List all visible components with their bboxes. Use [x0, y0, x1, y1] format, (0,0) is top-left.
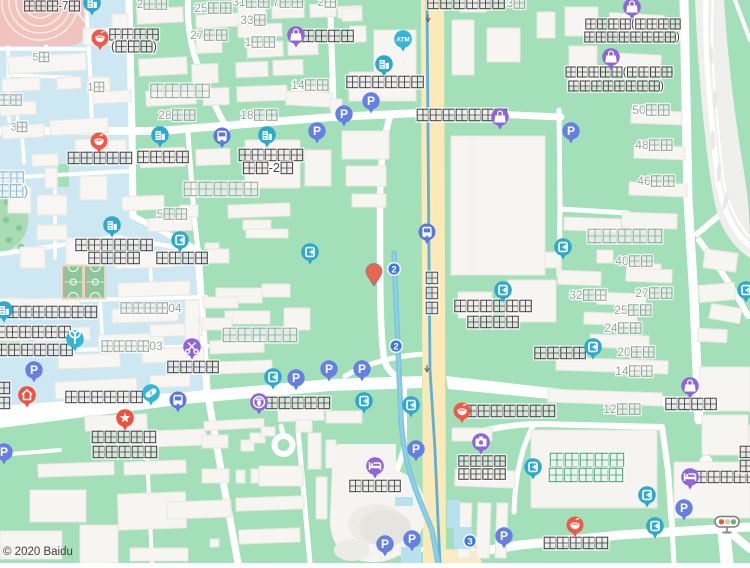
svg-text:33: 33 — [240, 13, 254, 27]
svg-text:28: 28 — [158, 108, 172, 122]
svg-text:20: 20 — [617, 345, 631, 359]
svg-text:24: 24 — [604, 321, 618, 335]
svg-text:P: P — [325, 362, 333, 376]
svg-text:46: 46 — [637, 174, 651, 188]
svg-text:12: 12 — [603, 402, 617, 416]
svg-text:32: 32 — [569, 288, 583, 302]
svg-text:P: P — [292, 371, 300, 385]
svg-text:P: P — [567, 124, 575, 138]
svg-text:P: P — [313, 124, 321, 138]
svg-text:P: P — [340, 107, 348, 121]
svg-text:P: P — [500, 529, 508, 543]
svg-text:P: P — [367, 94, 375, 108]
svg-text:P: P — [680, 501, 688, 515]
svg-text:14: 14 — [291, 78, 305, 92]
svg-text:P: P — [381, 537, 389, 551]
svg-text:27: 27 — [190, 28, 204, 42]
svg-text:48: 48 — [635, 138, 649, 152]
svg-text:-7: -7 — [58, 1, 68, 13]
svg-text:3: 3 — [467, 537, 472, 548]
svg-text:ATM: ATM — [396, 37, 410, 44]
svg-text:31: 31 — [232, 0, 246, 9]
svg-text:2: 2 — [391, 265, 396, 276]
svg-text:27: 27 — [635, 286, 649, 300]
svg-text:14: 14 — [615, 364, 629, 378]
svg-text:03: 03 — [149, 339, 163, 353]
svg-text:P: P — [408, 532, 416, 546]
svg-text:): ) — [676, 32, 680, 44]
svg-text:P: P — [30, 363, 38, 377]
svg-text:18: 18 — [240, 108, 254, 122]
svg-text:25: 25 — [194, 1, 208, 15]
svg-text:2: 2 — [393, 342, 398, 353]
svg-text:25: 25 — [614, 303, 628, 317]
svg-text:-2: -2 — [269, 160, 281, 175]
svg-text:): ) — [24, 183, 29, 199]
svg-text:P: P — [412, 442, 420, 456]
svg-text:): ) — [660, 81, 664, 93]
svg-text:P: P — [0, 445, 8, 459]
svg-text:): ) — [153, 40, 157, 54]
svg-text:© 2020 Baidu: © 2020 Baidu — [3, 546, 73, 558]
svg-text:40: 40 — [615, 254, 629, 268]
svg-text:04: 04 — [168, 301, 182, 315]
svg-text:P: P — [358, 362, 366, 376]
svg-text:50: 50 — [632, 103, 646, 117]
